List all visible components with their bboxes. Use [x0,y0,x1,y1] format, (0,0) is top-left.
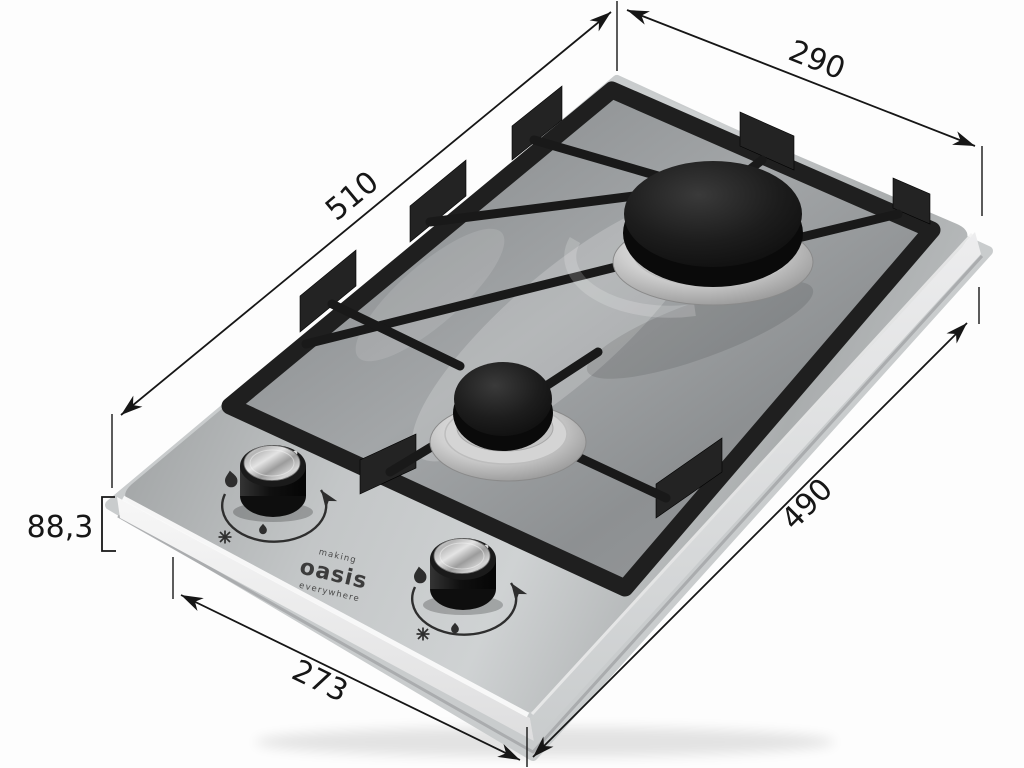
knob-front-steel-cap [434,539,490,574]
dim-left-depth-label: 510 [319,165,385,228]
dim-body-height: 88,3 [27,497,116,551]
dim-front-width-label: 273 [286,653,353,710]
dim-body-height-label: 88,3 [27,510,94,545]
ignition-spark-icon [417,628,430,641]
product-dimension-figure: making oasis everywhere 290 510 49 [0,0,1024,768]
burner-large-cap [624,161,802,267]
gas-hob: making oasis everywhere [110,80,988,757]
knob-rear-steel-cap [244,446,300,481]
ignition-spark-icon [219,531,232,544]
burner-small-cap [454,362,552,436]
dim-back-width-label: 290 [784,34,850,88]
